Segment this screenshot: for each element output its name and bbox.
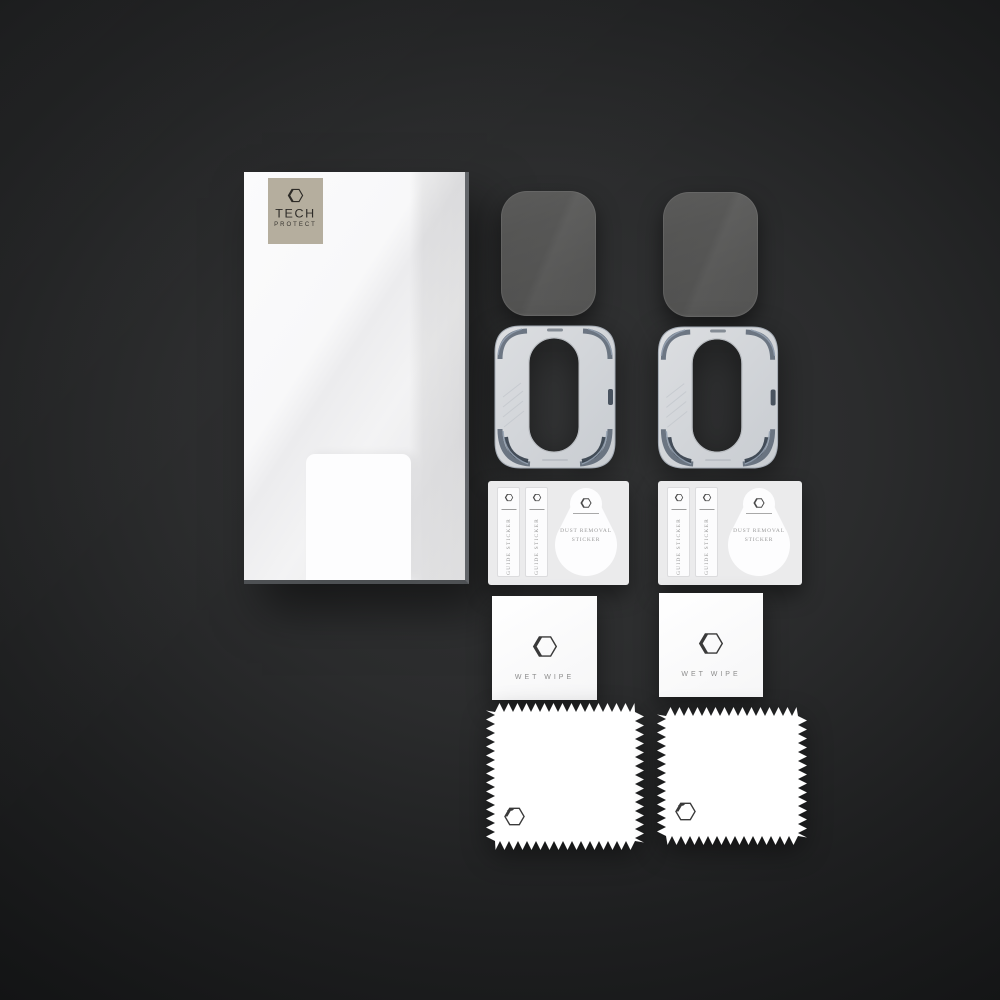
installation-frame-1 [494, 325, 616, 469]
hexagon-icon [503, 805, 526, 828]
microfiber-cloth-1 [486, 703, 644, 850]
divider-line [746, 513, 772, 514]
cloth-body [657, 707, 807, 845]
hexagon-icon [532, 493, 541, 502]
divider-line [671, 509, 686, 510]
brand-hexagon-icon [287, 187, 304, 204]
divider-line [529, 509, 544, 510]
brand-name: TECH [275, 208, 315, 221]
hexagon-icon [702, 493, 711, 502]
dust-removal-label: DUST REMOVAL STICKER [727, 527, 791, 545]
sticker-sheet-2: GUIDE STICKER GUIDE STICKER DUST REMOVAL… [658, 481, 802, 585]
guide-sticker-label: GUIDE STICKER [704, 518, 710, 575]
microfiber-cloth-2 [657, 707, 807, 845]
camera-lens-protector-2 [663, 192, 758, 317]
wet-wipe-label: WET WIPE [659, 671, 763, 678]
dust-removal-label-line1: DUST REMOVAL [727, 527, 791, 536]
guide-sticker-label: GUIDE STICKER [534, 518, 540, 575]
brand-logo-plate: TECH PROTECT [268, 178, 323, 244]
divider-line [573, 513, 599, 514]
dust-removal-label-line1: DUST REMOVAL [554, 527, 618, 536]
hexagon-icon [580, 497, 592, 509]
hexagon-icon [504, 493, 513, 502]
brand-subname: PROTECT [274, 222, 317, 228]
dust-removal-label-line2: STICKER [727, 536, 791, 545]
guide-sticker-strip: GUIDE STICKER [667, 487, 690, 577]
dust-removal-sticker: DUST REMOVAL STICKER [554, 488, 618, 580]
hexagon-icon [674, 800, 697, 823]
dust-removal-label-line2: STICKER [554, 536, 618, 545]
box-side-shade [409, 172, 465, 580]
wet-wipe-sachet-2: WET WIPE [659, 593, 763, 697]
product-photo-scene: TECH PROTECT [0, 0, 1000, 1000]
box-window-panel [306, 454, 411, 580]
hexagon-icon [753, 497, 765, 509]
dust-removal-sticker: DUST REMOVAL STICKER [727, 488, 791, 580]
guide-sticker-label: GUIDE STICKER [676, 518, 682, 575]
cloth-body [486, 703, 644, 850]
wet-wipe-label: WET WIPE [492, 674, 597, 681]
guide-sticker-strip: GUIDE STICKER [695, 487, 718, 577]
hexagon-icon [531, 633, 558, 660]
wet-wipe-sachet-1: WET WIPE [492, 596, 597, 700]
camera-lens-protector-1 [501, 191, 596, 316]
hexagon-icon [674, 493, 683, 502]
installation-frame-2 [656, 326, 780, 469]
guide-sticker-strip: GUIDE STICKER [525, 487, 548, 577]
guide-sticker-strip: GUIDE STICKER [497, 487, 520, 577]
guide-sticker-label: GUIDE STICKER [506, 518, 512, 575]
divider-line [699, 509, 714, 510]
sticker-sheet-1: GUIDE STICKER GUIDE STICKER DUST REMOVAL… [488, 481, 629, 585]
dust-removal-label: DUST REMOVAL STICKER [554, 527, 618, 545]
divider-line [501, 509, 516, 510]
retail-box: TECH PROTECT [244, 172, 469, 584]
hexagon-icon [698, 630, 725, 657]
